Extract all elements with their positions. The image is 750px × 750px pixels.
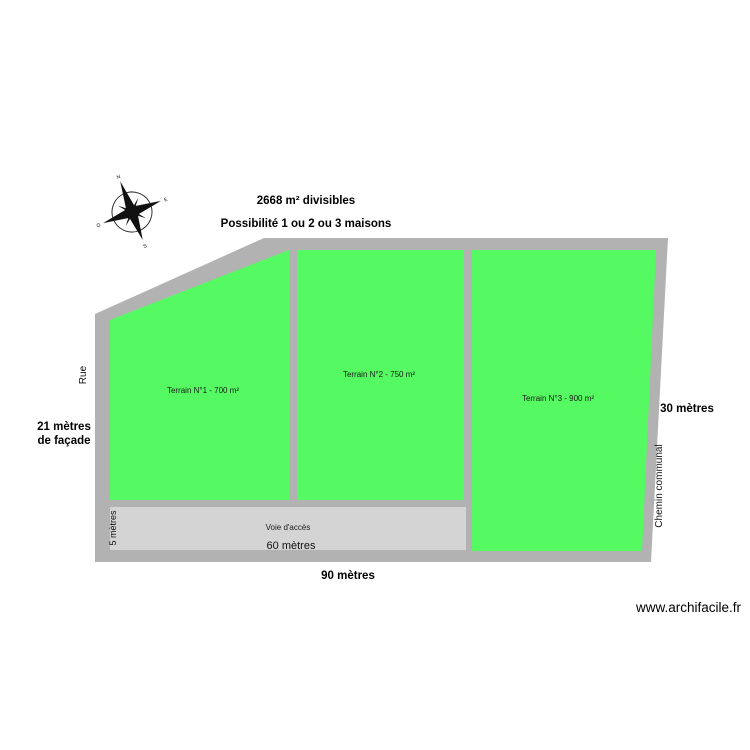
parcel-terrain-1[interactable]: [110, 250, 289, 500]
plot-title-line1: 2668 m² divisibles: [257, 195, 355, 207]
site-plan-page: N S E O 2668 m² divisibles Possibilité 1…: [0, 0, 750, 750]
compass-south-label: S: [143, 243, 149, 250]
compass-east-label: E: [163, 196, 169, 203]
facade-width-label-line2: de façade: [37, 435, 90, 447]
facade-width-label-line1: 21 mètres: [37, 421, 91, 433]
total-width-label: 90 mètres: [321, 570, 375, 582]
access-road-length-label: 60 mètres: [267, 540, 316, 552]
compass-west-label: O: [96, 222, 102, 229]
access-road-width-label: 5 mètres: [108, 510, 118, 546]
site-plan-canvas: N S E O 2668 m² divisibles Possibilité 1…: [0, 0, 750, 750]
watermark-link[interactable]: www.archifacile.fr: [635, 600, 742, 615]
access-road-label: Voie d'accès: [266, 523, 311, 532]
terrain-3-label: Terrain N°3 - 900 m²: [522, 394, 594, 403]
compass-rose-icon: N S E O: [82, 161, 182, 263]
terrain-1-label: Terrain N°1 - 700 m²: [167, 386, 239, 395]
right-depth-label: 30 mètres: [660, 403, 714, 415]
plot-title-line2: Possibilité 1 ou 2 ou 3 maisons: [221, 218, 392, 230]
compass-north-label: N: [116, 174, 122, 181]
street-left-label: Rue: [78, 365, 89, 384]
street-right-label: Chemin communal: [654, 444, 665, 527]
terrain-2-label: Terrain N°2 - 750 m²: [343, 370, 415, 379]
